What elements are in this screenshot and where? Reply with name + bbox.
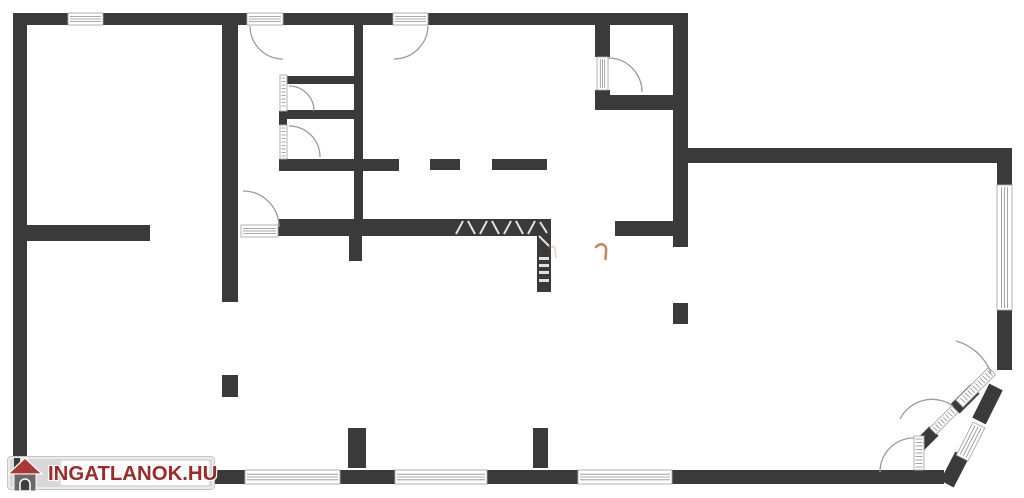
door-leaf [247, 13, 283, 25]
logo-text: INGATLANOK.HU [48, 463, 217, 484]
wall [354, 25, 363, 236]
door-swing-arc [394, 26, 428, 59]
door-swing-arc [956, 341, 991, 373]
wall [997, 163, 1012, 185]
diagonal-wall [979, 387, 996, 421]
wall-hatch [539, 264, 549, 267]
door-leaf [597, 57, 608, 90]
wall [487, 470, 578, 484]
wall-hatch [539, 279, 549, 282]
wall [279, 159, 399, 171]
wall [340, 470, 395, 484]
wall-hatch [539, 271, 549, 274]
wall [13, 13, 688, 25]
wall [615, 221, 673, 236]
window [68, 13, 103, 25]
door-swing-arc [243, 191, 279, 227]
wall [13, 13, 27, 474]
house-icon [8, 457, 44, 493]
wall [287, 110, 362, 119]
door-swing-arc [880, 438, 914, 472]
wall [349, 236, 362, 261]
floor-plan-canvas [0, 0, 1024, 498]
door-leaf [393, 13, 428, 25]
window [578, 470, 672, 484]
wall [492, 159, 547, 170]
door-leaf [280, 125, 287, 159]
wall [673, 13, 688, 247]
wall [222, 375, 238, 397]
door-leaf [930, 406, 958, 434]
door-leaf [280, 75, 287, 111]
leaf-frame [930, 406, 958, 434]
wall [533, 428, 548, 468]
wall [672, 470, 944, 484]
door-leaf [241, 225, 278, 237]
watermark-mark [596, 244, 606, 259]
window [997, 185, 1012, 310]
wall [595, 90, 610, 110]
diagonal-wall [947, 455, 962, 484]
wall [595, 25, 610, 57]
wall [279, 111, 287, 125]
wall [27, 225, 150, 241]
wall [610, 95, 673, 110]
door-swing-arc [289, 86, 314, 111]
wall [430, 159, 460, 170]
watermark-logo: INGATLANOK.HU [7, 456, 215, 490]
wall-hatch [539, 257, 549, 260]
wall [222, 25, 238, 302]
door-swing-arc [250, 26, 283, 59]
wall [673, 303, 688, 324]
door-leaf [914, 436, 924, 470]
window [395, 470, 487, 484]
window [956, 422, 984, 461]
wall [997, 310, 1012, 370]
wall [688, 148, 1012, 163]
wall [287, 76, 362, 84]
door-swing-arc [608, 58, 642, 92]
roof-shape [8, 458, 42, 474]
door-swing-arc [289, 126, 320, 157]
floor-plan: INGATLANOK.HU [0, 0, 1024, 498]
door-arch-shape [20, 479, 30, 491]
window [245, 470, 340, 484]
wall [348, 428, 366, 468]
